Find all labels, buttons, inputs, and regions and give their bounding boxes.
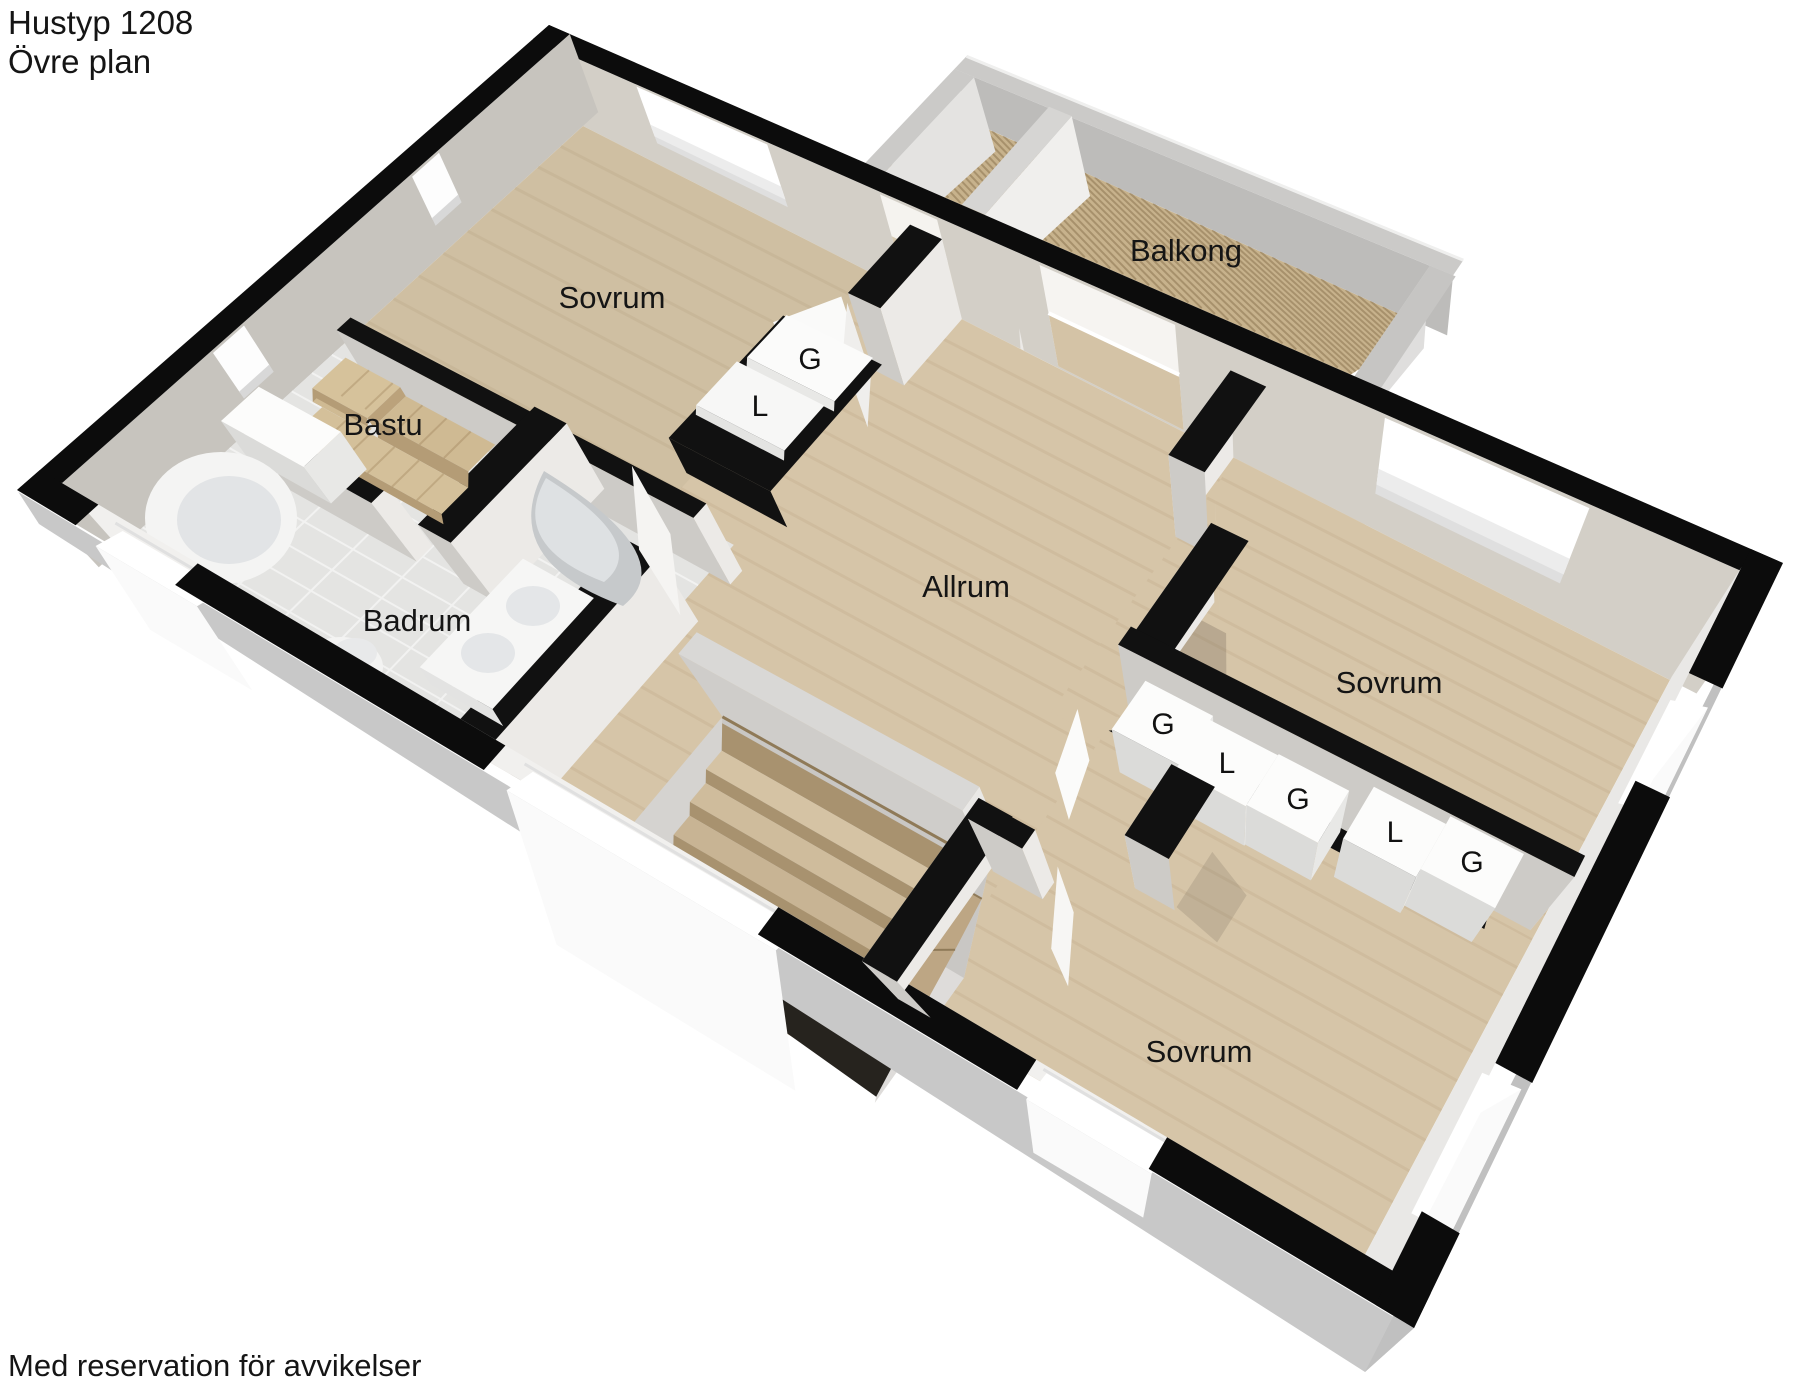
svg-text:Sovrum: Sovrum — [1336, 665, 1443, 700]
svg-text:G: G — [1460, 846, 1483, 879]
svg-text:Övre plan: Övre plan — [8, 43, 151, 80]
svg-text:Sovrum: Sovrum — [1146, 1034, 1253, 1069]
svg-text:Bastu: Bastu — [343, 407, 422, 442]
svg-text:G: G — [1151, 708, 1174, 741]
svg-text:G: G — [1286, 783, 1309, 816]
svg-text:L: L — [1387, 816, 1404, 849]
svg-text:Allrum: Allrum — [922, 569, 1010, 604]
svg-text:L: L — [1219, 747, 1236, 780]
svg-text:Sovrum: Sovrum — [559, 280, 666, 315]
svg-text:Balkong: Balkong — [1130, 233, 1242, 268]
svg-text:Hustyp 1208: Hustyp 1208 — [8, 4, 193, 41]
svg-text:L: L — [752, 390, 769, 423]
svg-text:Med reservation för avvikelser: Med reservation för avvikelser — [8, 1348, 422, 1383]
svg-text:Badrum: Badrum — [363, 603, 472, 638]
svg-text:G: G — [798, 343, 821, 376]
